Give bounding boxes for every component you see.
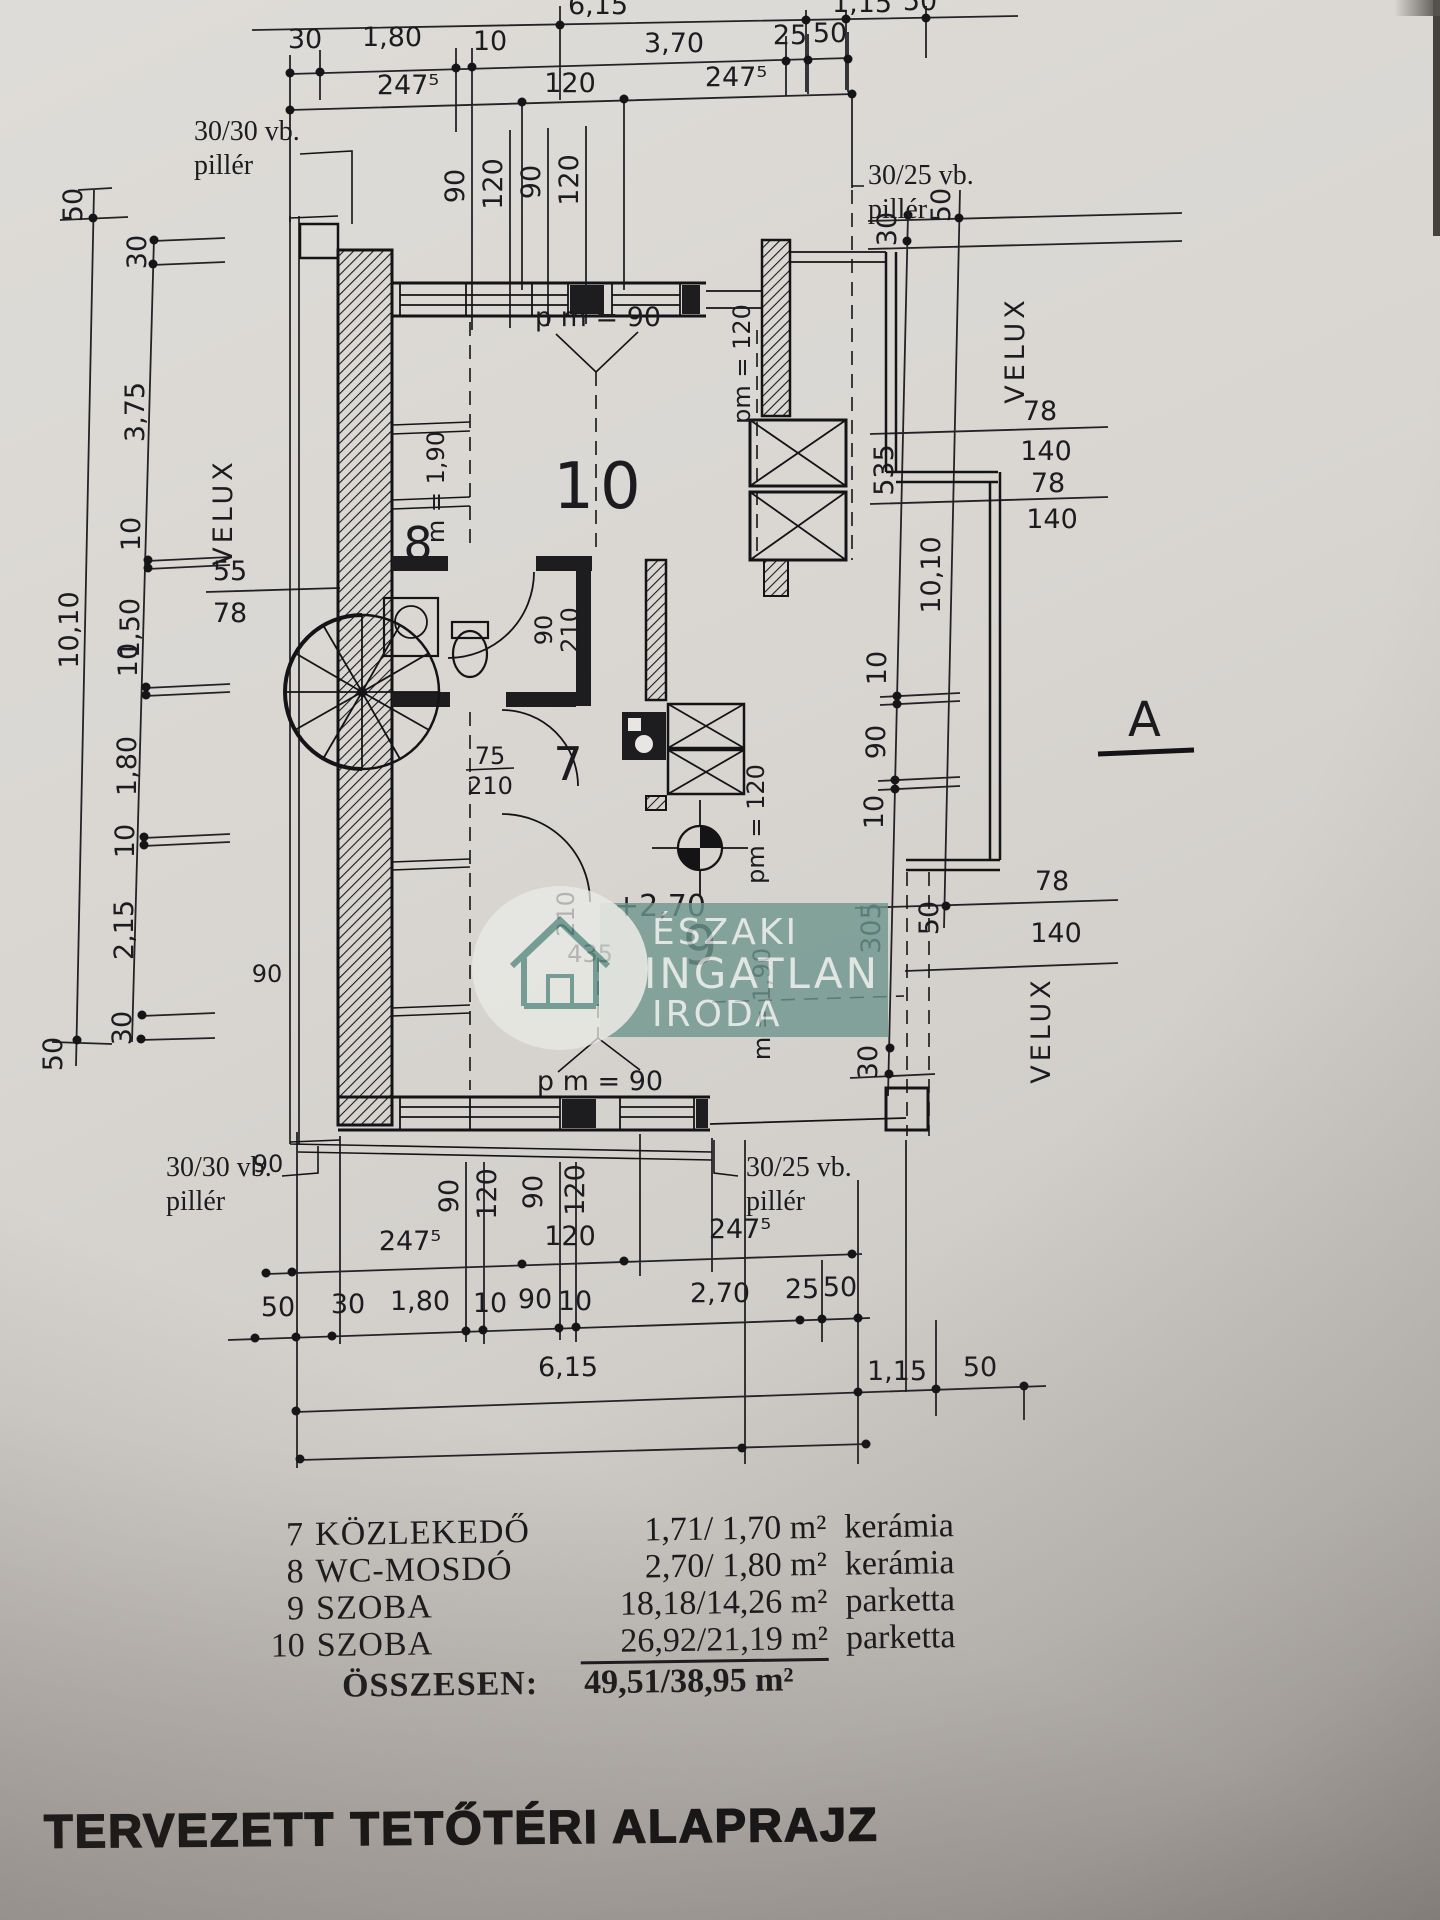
room-label-7: 7	[553, 737, 582, 791]
watermark-text: INGATLAN	[644, 949, 880, 998]
legend-total-label: ÖSSZESEN:	[256, 1665, 539, 1707]
dim-label: 90	[518, 1175, 549, 1209]
legend-room-number: 9	[255, 1590, 305, 1629]
watermark-badge	[472, 886, 648, 1050]
area-legend: 7 KÖZLEKEDŐ 1,71/ 1,70 m² kerámia 8 WC-M…	[254, 1507, 957, 1709]
wall-stub	[764, 560, 788, 596]
pillar-note-top-left: pillér	[194, 150, 254, 181]
dim-label: 6,15	[568, 0, 628, 21]
headroom-note: m = 1,90	[422, 431, 450, 543]
dim-label: 247⁵	[705, 62, 767, 93]
dim-label: 50	[823, 1272, 857, 1303]
dim-label: 10	[116, 517, 147, 551]
legend-room-finish: parketta	[828, 1618, 956, 1658]
dim-label: 50	[38, 1037, 69, 1071]
dim-label: 247⁵	[379, 1226, 441, 1257]
partition-wall	[392, 692, 450, 707]
legend-room-finish: kerámia	[827, 1544, 955, 1584]
dim-label: 30	[107, 1011, 138, 1045]
chimney-wall	[762, 240, 790, 416]
dim-label: 10	[558, 1286, 592, 1317]
dim-label: 247⁵	[377, 70, 439, 101]
velux-label: VELUX	[1026, 976, 1057, 1084]
dim-note: 90	[252, 960, 283, 988]
dim-label: 30	[853, 1045, 884, 1079]
dim-label: 10	[473, 1288, 507, 1319]
level-marker	[652, 800, 748, 896]
dim-label: 30	[331, 1289, 365, 1320]
dim-label: 6,15	[538, 1352, 598, 1383]
dim-label: 90	[440, 169, 471, 203]
legend-room-name: SZOBA	[304, 1586, 580, 1628]
corner-pillar-top-left	[300, 224, 338, 258]
dim-label: 10	[862, 651, 893, 685]
dimension-labels-bottom: 90 120 90 120 90 247⁵ 120 247⁵ 50 30 1,8…	[253, 1150, 997, 1387]
section-letter: A	[1128, 692, 1161, 748]
dim-label: 1,80	[390, 1286, 450, 1317]
scanned-floor-plan-page: 6,15 1,15 50 30 1,80 10 3,70 25 50 247⁵ …	[0, 0, 1440, 1920]
dim-label: 1,80	[112, 736, 143, 796]
dim-label: 50	[903, 0, 937, 17]
dimension-labels-left: 50 10,10 50 30 3,75 10 1,50 10 1,80 10 2…	[38, 188, 247, 1071]
window-pillar	[562, 1099, 596, 1128]
dim-label: 50	[813, 18, 847, 49]
dim-label: 90	[861, 725, 892, 759]
dim-label: 3,75	[120, 382, 151, 442]
watermark: ÉSZAKI INGATLAN IRODA	[472, 886, 888, 1050]
legend-room-name: WC-MOSDÓ	[303, 1549, 579, 1591]
legend-room-area: 18,18/14,26 m²	[579, 1583, 827, 1624]
wall-stub	[646, 796, 666, 810]
pillar-note-bottom-left: 30/30 vb.	[166, 1152, 272, 1183]
dim-label: 140	[1030, 918, 1082, 949]
dim-label: 140	[1020, 436, 1072, 467]
legend-room-number: 8	[254, 1553, 304, 1592]
dim-label: 30	[288, 24, 322, 55]
legend-room-area: 1,71/ 1,70 m²	[578, 1509, 826, 1550]
dim-label: 78	[213, 598, 247, 629]
dim-label: 140	[1026, 504, 1078, 535]
interior-wall	[646, 560, 666, 700]
dim-label: 10,10	[916, 536, 947, 613]
dim-label: 90	[516, 165, 547, 199]
dim-label: 25	[785, 1274, 819, 1305]
pillar-note-top-right: pillér	[868, 194, 928, 225]
dim-label: 120	[554, 154, 585, 206]
pillar-note-bottom-right: pillér	[746, 1186, 806, 1217]
parapet-note: pm = 120	[728, 304, 756, 424]
room-label-10: 10	[553, 450, 646, 524]
dim-label: 120	[472, 1168, 503, 1220]
parapet-note: p m = 90	[537, 1066, 663, 1097]
legend-room-name: SZOBA	[304, 1623, 580, 1665]
velux-label: VELUX	[208, 458, 239, 566]
pillar-note-bottom-left: pillér	[166, 1186, 226, 1217]
dim-label: 1,15	[832, 0, 892, 19]
dim-label: 78	[1031, 468, 1065, 499]
photo-corner-artifact	[1394, 0, 1440, 16]
watermark-text: ÉSZAKI	[652, 911, 799, 953]
dim-label: 50	[58, 188, 89, 222]
dim-label: 90	[518, 1284, 552, 1315]
door-size: 210	[556, 607, 584, 653]
dim-label: 3,70	[644, 28, 704, 59]
dim-label: 10	[859, 795, 890, 829]
dim-label: 25	[773, 20, 807, 51]
door-size: 210	[467, 772, 513, 800]
pillar-note-bottom-right: 30/25 vb.	[746, 1152, 852, 1183]
dim-label: 50	[261, 1292, 295, 1323]
legend-room-finish: parketta	[827, 1581, 955, 1621]
velux-label: VELUX	[1000, 296, 1031, 404]
partition-wall	[506, 692, 576, 707]
dim-label: 78	[1023, 396, 1057, 427]
legend-room-area: 2,70/ 1,80 m²	[579, 1546, 827, 1587]
pillar-note-top-left: 30/30 vb.	[194, 116, 300, 147]
legend-room-area: 26,92/21,19 m²	[580, 1620, 828, 1664]
dim-label: 1,80	[362, 22, 422, 53]
dim-label: 120	[544, 68, 596, 99]
dim-label: 2,15	[109, 900, 140, 960]
dim-label: 50	[963, 1352, 997, 1383]
legend-room-number: 10	[255, 1627, 305, 1666]
dim-label: 120	[478, 158, 509, 210]
drawing-title: TERVEZETT TETŐTÉRI ALAPRAJZ	[44, 1796, 879, 1858]
dim-label: 10,10	[54, 591, 85, 668]
legend-room-name: KÖZLEKEDŐ	[303, 1512, 579, 1554]
dim-label: 55	[213, 556, 247, 587]
legend-room-finish: kerámia	[826, 1507, 954, 1547]
dim-label: 247⁵	[709, 1214, 771, 1245]
parapet-note: pm = 120	[742, 764, 770, 884]
dim-label: 10	[113, 643, 144, 677]
dim-label: 10	[473, 26, 507, 57]
door-size: 75	[475, 742, 506, 770]
legend-room-number: 7	[254, 1516, 304, 1555]
dimension-lines-left	[52, 188, 340, 1066]
photo-edge-artifact	[1433, 0, 1440, 236]
window-pillar	[682, 285, 700, 314]
watermark-text: IRODA	[652, 994, 783, 1035]
dimension-labels-top: 6,15 1,15 50 30 1,80 10 3,70 25 50 247⁵ …	[288, 0, 937, 210]
section-marker: A	[1098, 692, 1194, 754]
dim-label: 78	[1035, 866, 1069, 897]
parapet-note: p m = 90	[535, 302, 661, 333]
dim-label: 10	[110, 824, 141, 858]
dim-label: 120	[544, 1221, 596, 1252]
dim-label: 50	[926, 188, 957, 222]
door-size: 90	[530, 615, 558, 646]
pillar-note-top-right: 30/25 vb.	[868, 160, 974, 191]
legend-total-value: 49,51/38,95 m²	[538, 1661, 794, 1703]
dim-label: 1,15	[867, 1356, 927, 1387]
dim-label: 2,70	[690, 1278, 750, 1309]
dim-label: 90	[434, 1179, 465, 1213]
dim-label: 120	[560, 1164, 591, 1216]
dim-label: 30	[122, 235, 153, 269]
window-pillar	[696, 1099, 708, 1128]
